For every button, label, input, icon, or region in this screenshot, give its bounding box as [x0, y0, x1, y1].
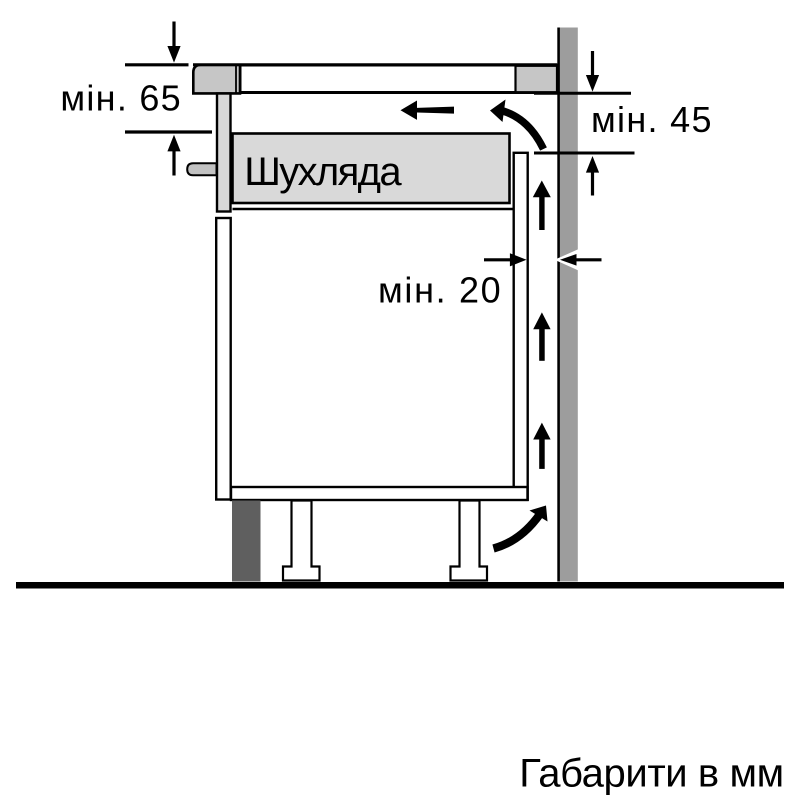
svg-text:мін. 65: мін. 65 [60, 78, 180, 119]
svg-text:мін. 20: мін. 20 [378, 270, 501, 311]
svg-text:Габарити в мм: Габарити в мм [519, 752, 784, 796]
svg-text:Шухляда: Шухляда [244, 150, 402, 194]
svg-text:мін. 45: мін. 45 [591, 99, 712, 140]
